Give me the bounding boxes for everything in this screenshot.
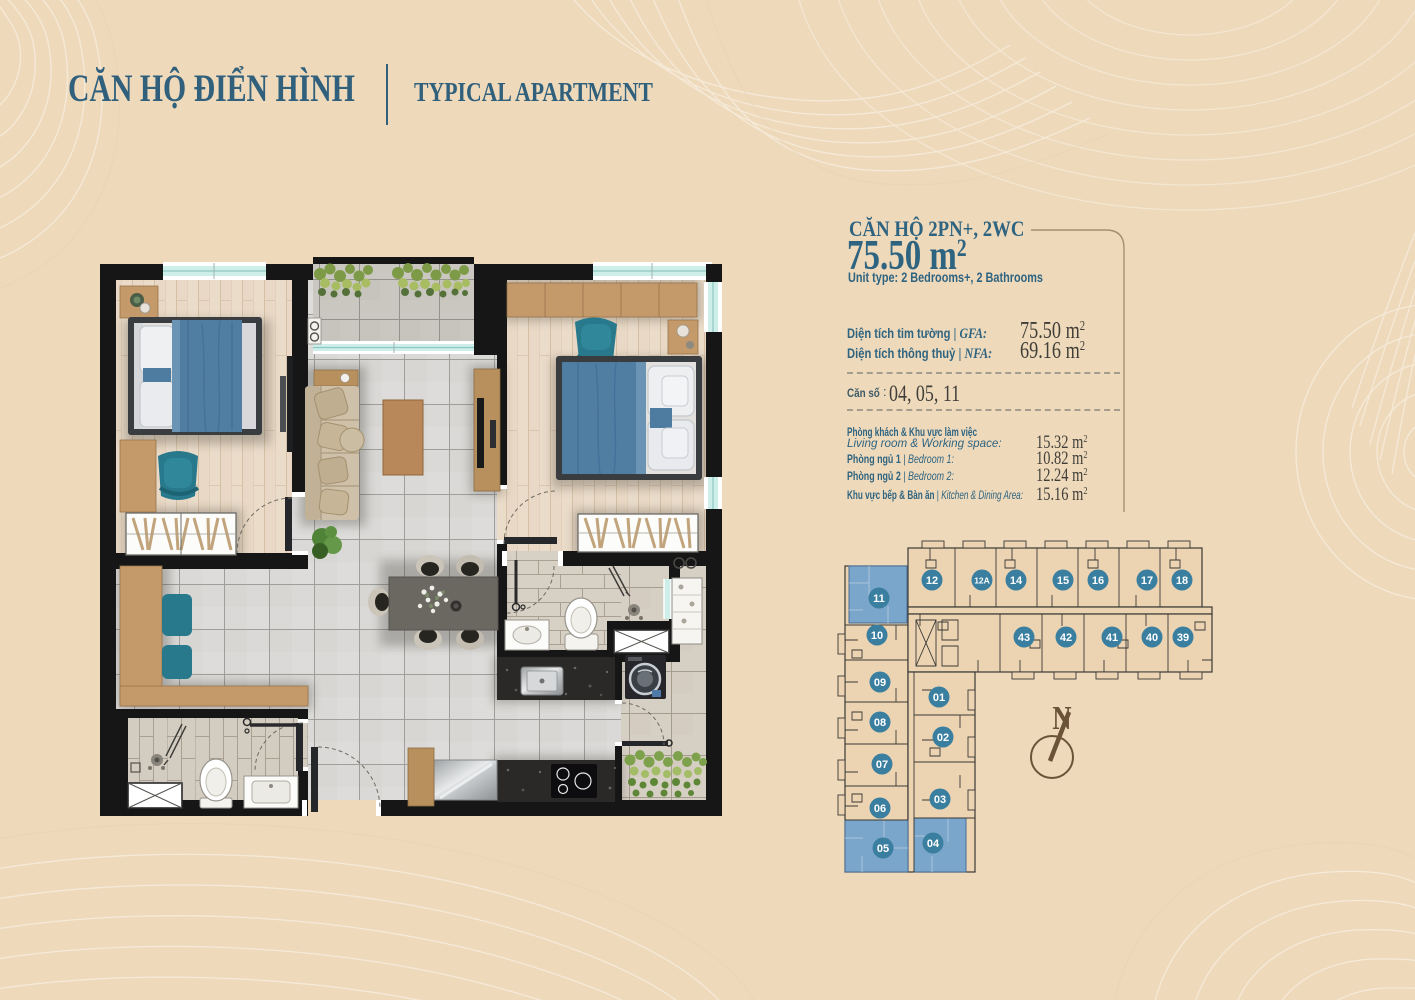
svg-text:12A: 12A [974,576,990,586]
svg-text:05: 05 [877,843,889,855]
svg-text:01: 01 [933,692,945,704]
svg-text:17: 17 [1141,575,1153,587]
svg-text:06: 06 [874,803,886,815]
svg-text:16: 16 [1092,575,1104,587]
svg-text:42: 42 [1060,632,1072,644]
svg-text:N: N [1052,699,1071,737]
svg-text:02: 02 [937,732,949,744]
svg-text:18: 18 [1176,575,1188,587]
svg-text:14: 14 [1010,575,1023,587]
svg-text:03: 03 [934,794,946,806]
svg-text:10: 10 [871,630,883,642]
svg-text:39: 39 [1177,632,1189,644]
svg-text:11: 11 [873,593,885,605]
svg-text:15: 15 [1057,575,1069,587]
svg-text:43: 43 [1018,632,1030,644]
svg-text:09: 09 [874,677,886,689]
svg-text:07: 07 [876,759,888,771]
svg-text:08: 08 [874,717,886,729]
svg-text:41: 41 [1106,632,1118,644]
svg-text:40: 40 [1146,632,1158,644]
svg-text:12: 12 [926,575,938,587]
svg-text:04: 04 [927,838,940,850]
